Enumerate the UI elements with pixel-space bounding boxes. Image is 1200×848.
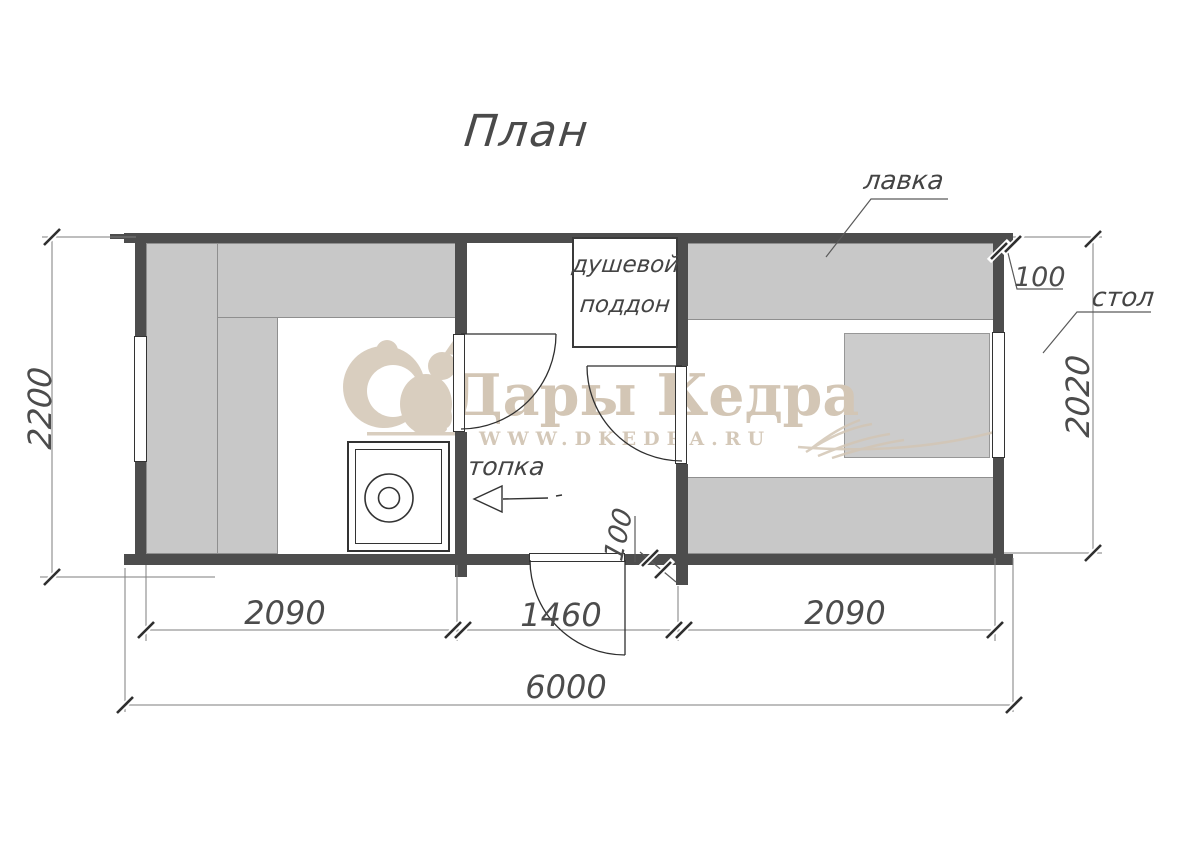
shower-tray-label-line2: поддон	[571, 292, 680, 318]
bench-leader	[826, 199, 948, 257]
firebox-arrow-icon	[474, 486, 562, 512]
page-title: План	[444, 106, 609, 157]
table-label: стол	[1090, 283, 1155, 313]
dim-wall-thickness-right: 100	[1014, 262, 1064, 293]
dim-total-length: 6000	[496, 668, 636, 706]
dim-right-room-width: 2090	[775, 594, 915, 632]
bench-label: лавка	[862, 166, 945, 196]
dim-left-height: 2200	[21, 336, 59, 480]
stove-icon	[365, 474, 413, 522]
firebox-label: топка	[466, 452, 546, 481]
dim-right-height: 2020	[1059, 324, 1097, 468]
shower-tray-label-line1: душевой	[571, 252, 680, 278]
floor-plan-canvas: Дары Кедра WWW.DKEDRA.RU	[0, 0, 1200, 848]
dim-left-room-width: 2090	[215, 594, 355, 632]
dim-middle-room-width: 1460	[491, 596, 631, 634]
